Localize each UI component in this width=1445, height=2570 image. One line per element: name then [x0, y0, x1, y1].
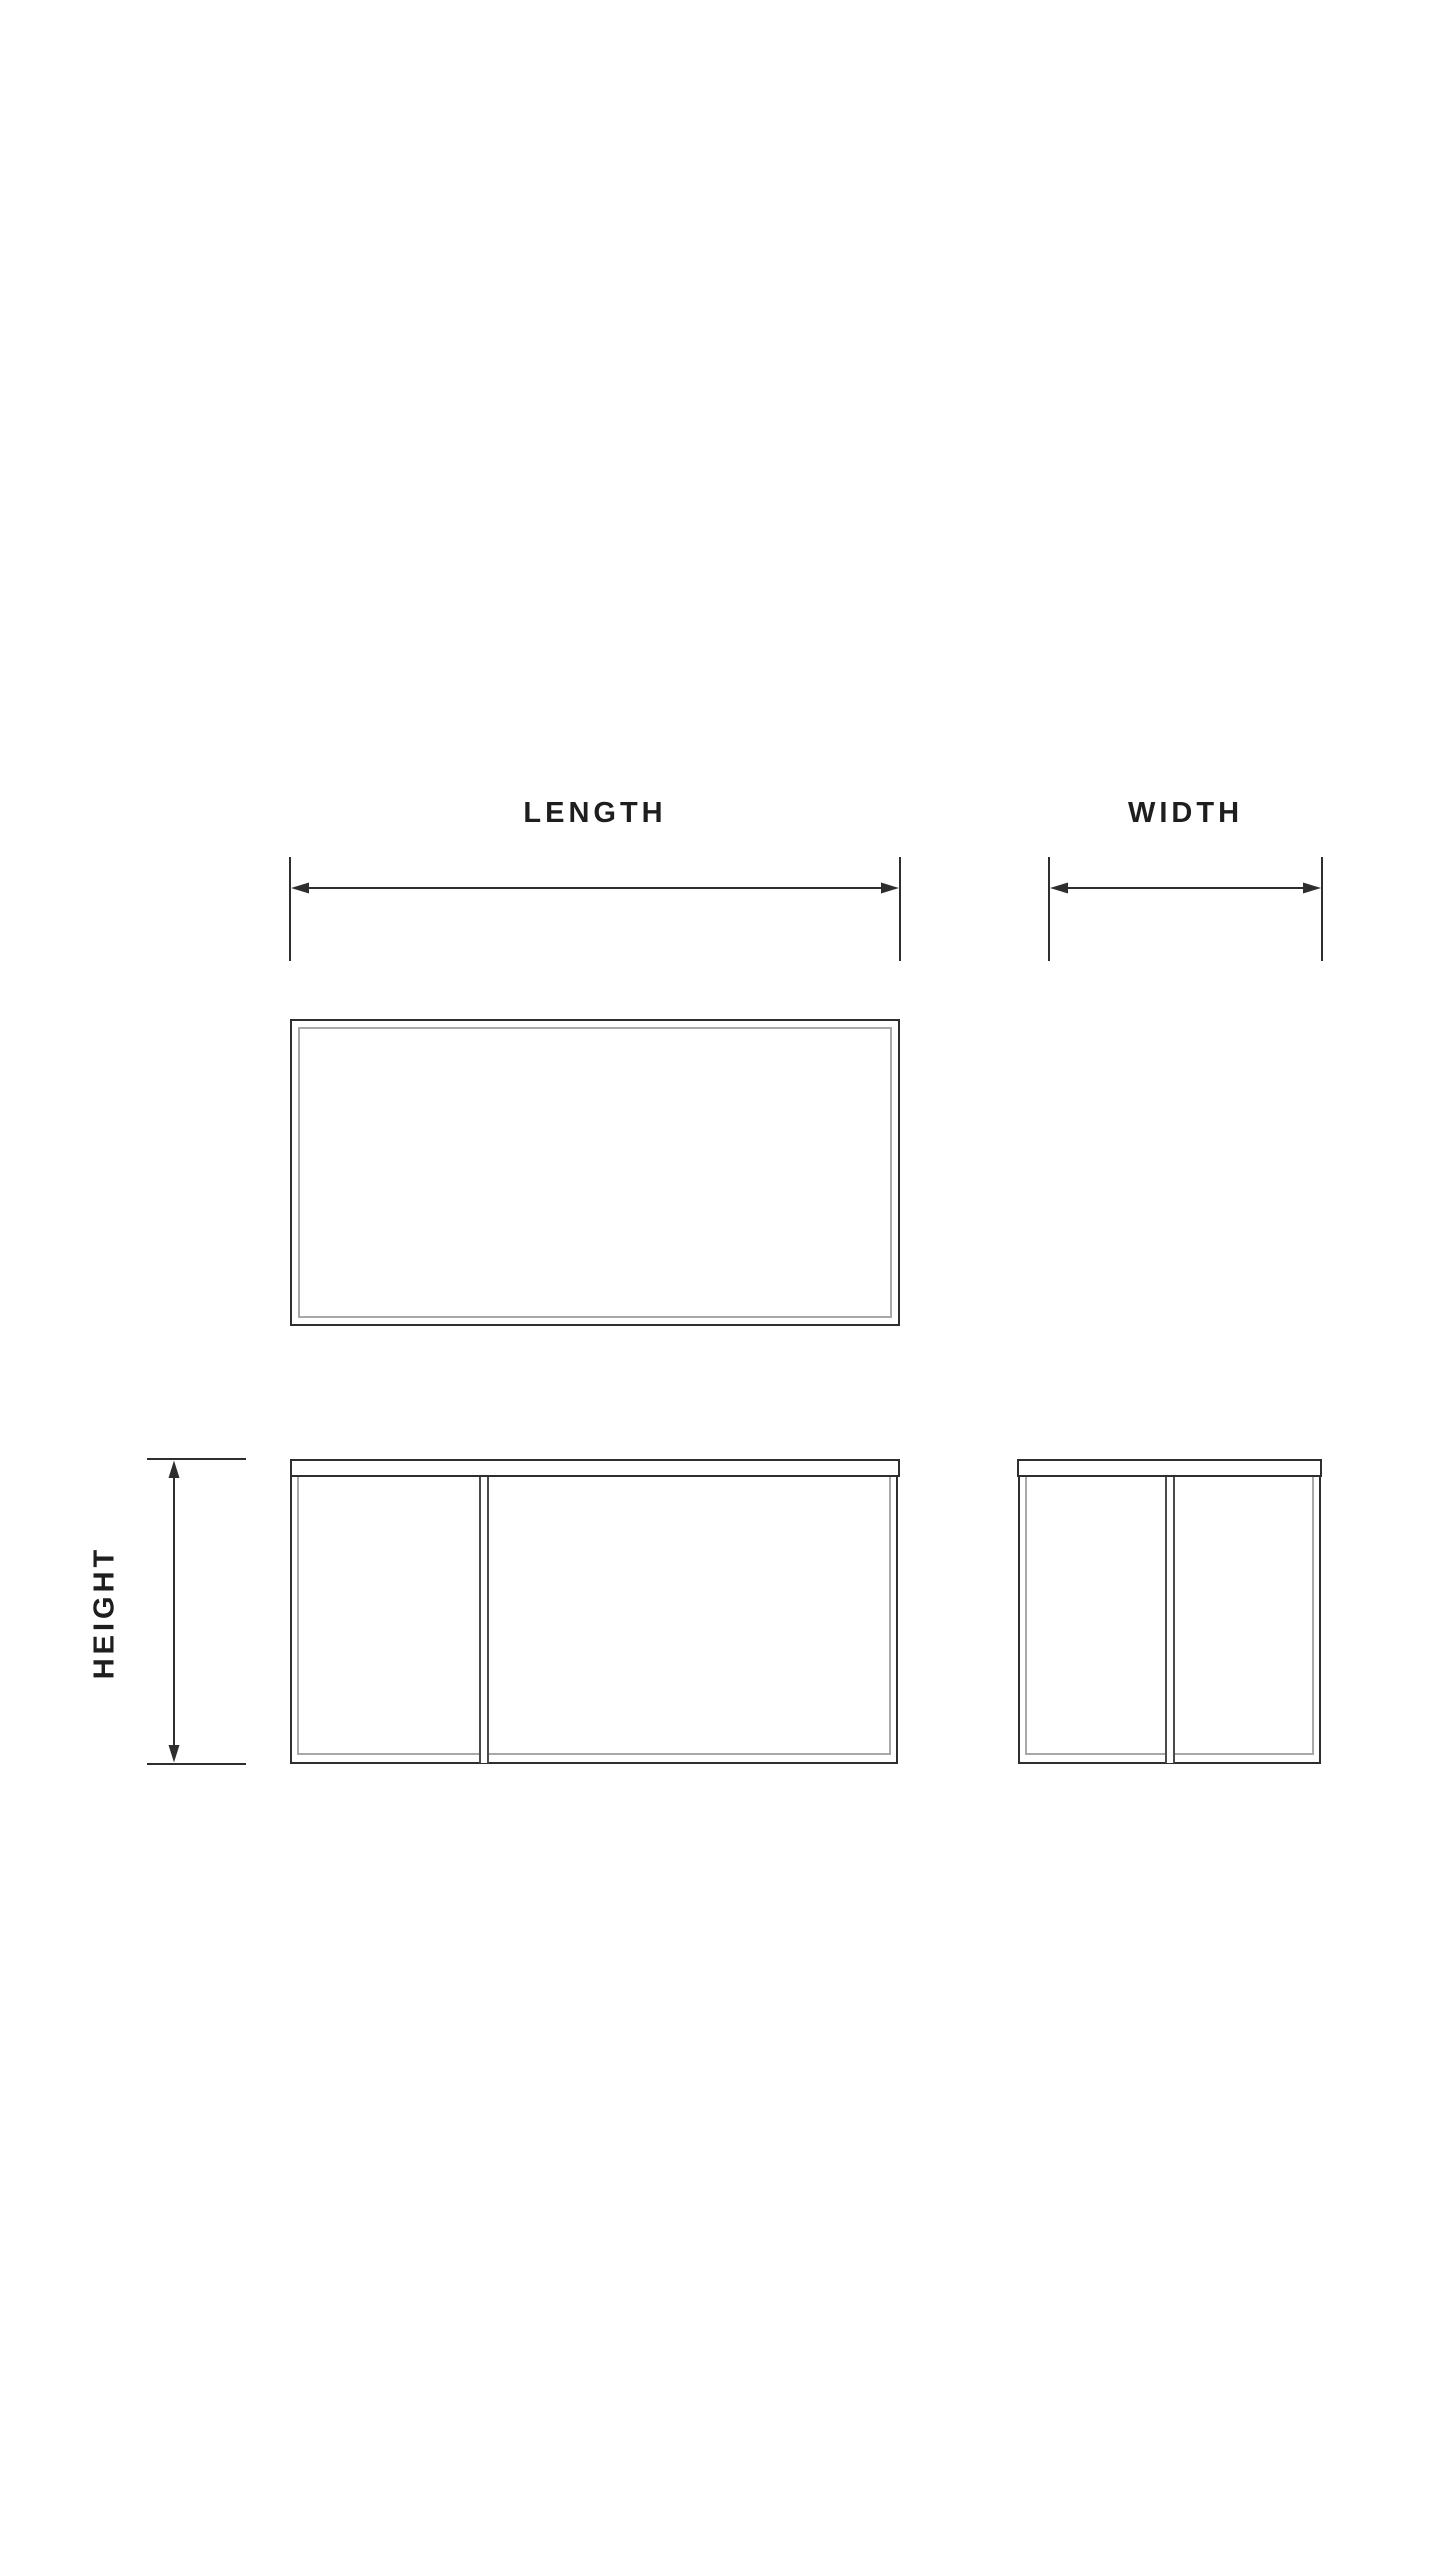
height-dimension-line	[164, 1459, 184, 1764]
side-view-tabletop	[1017, 1459, 1322, 1477]
top-view	[290, 1019, 900, 1326]
side-view-center-divider	[1165, 1477, 1175, 1763]
width-tick-right	[1321, 857, 1323, 961]
front-view-leg-inner-left	[297, 1477, 299, 1755]
front-view-leg-inner-right	[889, 1477, 891, 1755]
length-tick-left	[289, 857, 291, 961]
side-view-leg-inner-right	[1312, 1477, 1314, 1755]
height-label-text: HEIGHT	[91, 1545, 120, 1679]
length-tick-right	[899, 857, 901, 961]
length-label: LENGTH	[290, 799, 900, 828]
arrow-head-right-icon	[1303, 883, 1321, 894]
width-tick-left	[1048, 857, 1050, 961]
arrow-head-right-icon	[881, 883, 899, 894]
arrow-head-down-icon	[169, 1745, 180, 1763]
length-dimension-line	[290, 878, 900, 898]
top-view-inner-edge	[298, 1027, 892, 1318]
front-view-center-divider	[479, 1477, 489, 1763]
arrow-head-left-icon	[291, 883, 309, 894]
arrow-head-up-icon	[169, 1461, 180, 1479]
height-tick-top	[147, 1458, 246, 1460]
furniture-dimension-diagram: LENGTH WIDTH HEIGHT	[0, 0, 1445, 2570]
side-view-leg-inner-left	[1025, 1477, 1027, 1755]
front-view-bottom-rail-inner	[297, 1753, 891, 1755]
arrow-head-left-icon	[1050, 883, 1068, 894]
front-view-tabletop	[290, 1459, 900, 1477]
front-view-frame	[290, 1477, 898, 1764]
height-tick-bottom	[147, 1763, 246, 1765]
width-dimension-line	[1049, 878, 1322, 898]
width-label: WIDTH	[1049, 799, 1322, 828]
